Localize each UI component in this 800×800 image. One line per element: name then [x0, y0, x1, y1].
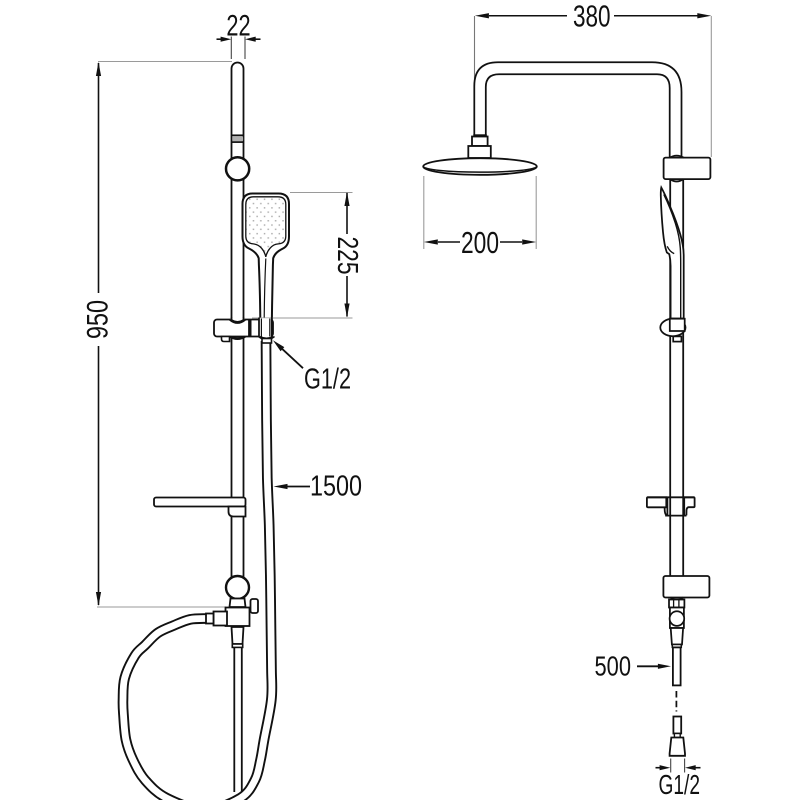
svg-text:380: 380	[573, 0, 611, 34]
svg-text:1500: 1500	[310, 471, 362, 503]
svg-text:225: 225	[331, 237, 363, 275]
svg-text:G1/2: G1/2	[659, 769, 701, 800]
svg-text:200: 200	[461, 225, 499, 260]
svg-text:500: 500	[595, 650, 632, 681]
svg-text:950: 950	[82, 300, 115, 339]
svg-text:22: 22	[226, 10, 250, 43]
svg-text:G1/2: G1/2	[304, 364, 351, 396]
